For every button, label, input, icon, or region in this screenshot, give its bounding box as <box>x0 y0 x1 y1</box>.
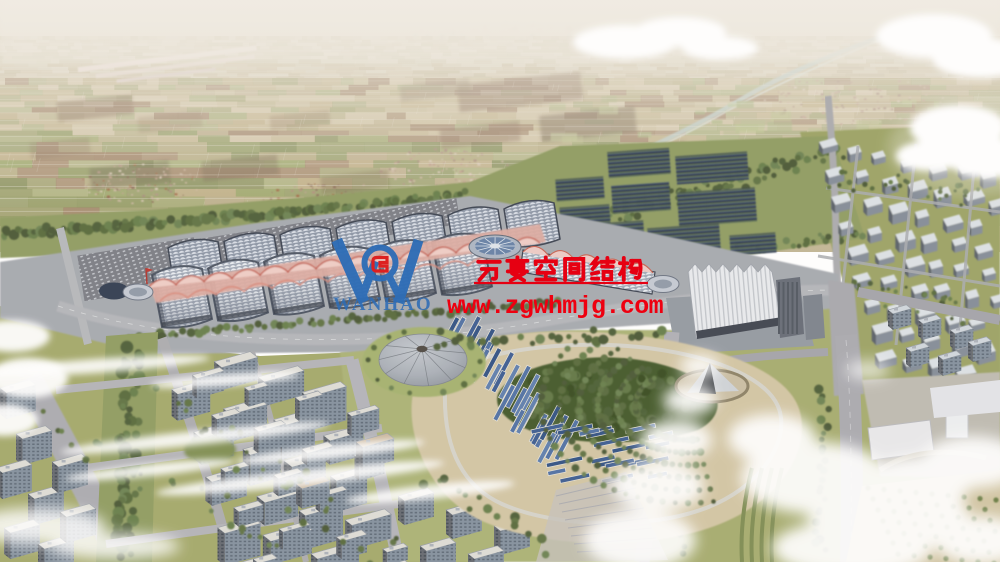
svg-text:WANHAO: WANHAO <box>333 294 433 315</box>
svg-text:www.zgwhmjg.com: www.zgwhmjg.com <box>447 292 664 321</box>
